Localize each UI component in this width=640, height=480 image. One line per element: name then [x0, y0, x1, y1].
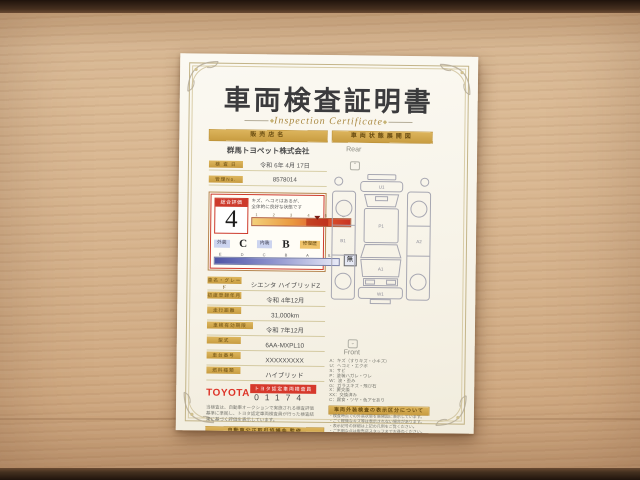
inspection-date-label: 検 査 日	[209, 161, 243, 168]
field-row-shaken-expiry: 車検有効期限 令和 7年12月	[207, 321, 325, 337]
fair-trade-footer: 自動車公正取引協議会 監修 ・本証明書は中古自動車の品質表示に関する 公正競争規…	[205, 427, 323, 434]
control-number-row: 管理No. 8578014	[209, 174, 327, 187]
repair-history-label: 修復歴	[300, 241, 321, 249]
rear-direction-icon: ⌃	[350, 161, 360, 170]
subtitle-flourish-right	[389, 122, 413, 123]
shop-header-bar: 販売店名	[209, 130, 327, 142]
front-direction-icon: ⌄	[348, 339, 358, 348]
fair-trade-bar: 自動車公正取引協議会 監修	[206, 427, 324, 434]
front-label: Front	[344, 349, 430, 357]
overall-score-cell: 総合評価 4	[214, 198, 248, 234]
corner-ornament	[434, 393, 468, 427]
field-row-fuel: 燃料種類 ハイブリッド	[206, 366, 324, 382]
panel-code: U1	[379, 185, 385, 190]
vehicle-fields: 車名・グレード シエンタ ハイブリッドZ 初度登録年月 令和 4年12月 走行距…	[206, 276, 325, 382]
inspection-certificate: 車両検査証明書 Inspection Certificate 販売店名 群馬トヨ…	[176, 53, 479, 434]
diagram-header-bar: 車両状態展開図	[332, 131, 432, 143]
shop-name: 群馬トヨペット株式会社	[209, 145, 327, 157]
vehicle-condition-diagram: U1 P1 B1 A2 A1 W1	[330, 173, 432, 332]
grade-scale-bar	[214, 257, 340, 267]
left-column: 販売店名 群馬トヨペット株式会社 検 査 日 令和 6年 4月 17日 管理No…	[205, 130, 327, 434]
interior-grade-label: 内装	[257, 240, 273, 248]
panel-code: A2	[416, 239, 422, 244]
inspection-date-value: 令和 6年 4月 17日	[243, 160, 327, 170]
inspector-row: TOYOTA トヨタ認定車両検査員 01174	[206, 384, 324, 402]
control-number-label: 管理No.	[209, 176, 243, 183]
field-row-mileage: 走行距離 31,000km	[207, 306, 325, 322]
display-category-notice: 車両外装検査の表示区分について ・検査時点での外装状態を展開図に表示しています。…	[329, 406, 429, 434]
grade-scale: E D C B A S	[214, 252, 340, 267]
overall-score-value: 4	[215, 207, 247, 233]
rear-label: Rear	[346, 146, 432, 154]
panel-code: B1	[340, 238, 346, 243]
field-row-model-code: 型式 6AA-MXPL10	[207, 336, 325, 352]
field-row-first-registration: 初度登録年月 令和 4年12月	[207, 291, 325, 307]
panel-code: A1	[378, 267, 384, 272]
control-number-value: 8578014	[243, 176, 327, 184]
disclaimer-text: 当検査は、自動車オークションで実施される検査評価 基準に準拠し、トヨタ認定車両検…	[206, 405, 324, 424]
subtitle-flourish-left	[244, 120, 268, 121]
photo-bottom-edge	[0, 468, 640, 480]
inspection-date-row: 検 査 日 令和 6年 4月 17日	[209, 159, 327, 172]
panel-code: P1	[378, 224, 384, 229]
score-marker	[314, 216, 320, 220]
evaluation-box: 総合評価 4 キズ、ヘコミはあるが、 全体的に良好な状態です 1 2 3 4 5…	[208, 192, 327, 272]
diagram-legend: A：キズ（すりキズ・小キズ） U：ヘコミ・エクボ S：サビ P：塗装ハガレ・ワレ…	[329, 359, 430, 404]
grades-row: 外装 C 内装 B 修復歴	[214, 238, 320, 251]
exterior-grade-value: C	[233, 238, 254, 250]
field-row-model: 車名・グレード シエンタ ハイブリッドZ	[207, 276, 325, 292]
toyota-logo: TOYOTA	[206, 388, 250, 400]
inspector-number: 01174	[254, 392, 307, 403]
field-row-chassis-number: 車台番号 XXXXXXXXX	[207, 351, 325, 367]
certificate-title: 車両検査証明書	[180, 77, 478, 120]
certificate-subtitle: Inspection Certificate	[179, 114, 477, 129]
right-column: 車両状態展開図 Rear ⌃	[328, 131, 432, 434]
photo-top-edge	[0, 0, 640, 13]
panel-code: W1	[377, 292, 384, 297]
exterior-grade-label: 外装	[214, 240, 230, 248]
evaluation-box-inner: 総合評価 4 キズ、ヘコミはあるが、 全体的に良好な状態です 1 2 3 4 5…	[210, 194, 325, 270]
photo-background: 車両検査証明書 Inspection Certificate 販売店名 群馬トヨ…	[0, 0, 640, 480]
interior-grade-value: B	[275, 238, 296, 250]
